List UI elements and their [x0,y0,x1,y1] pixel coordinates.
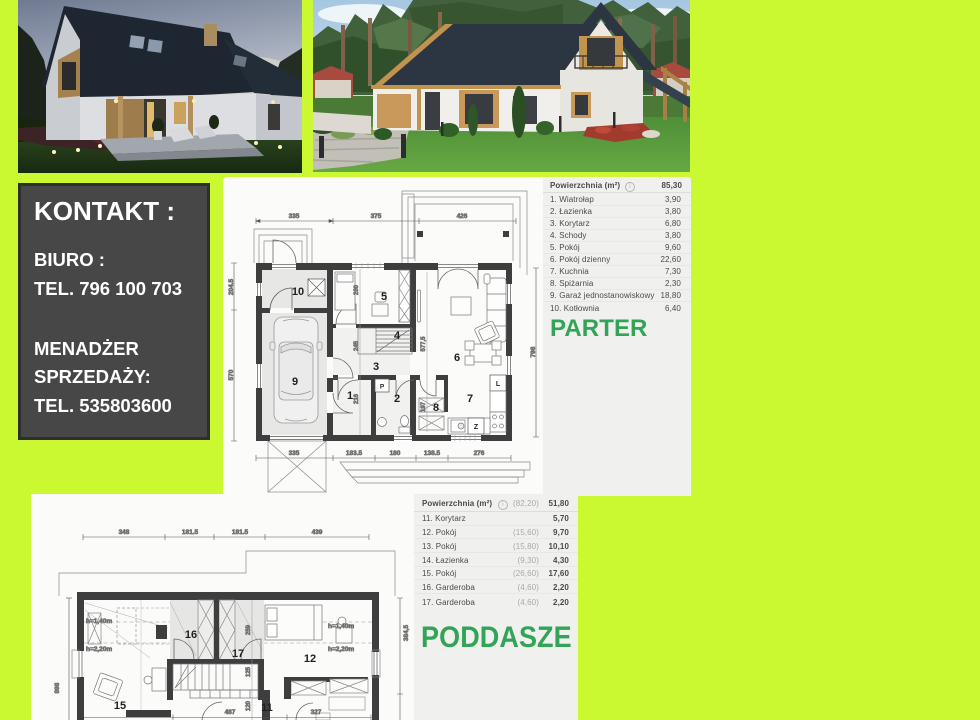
svg-text:197: 197 [421,401,427,412]
svg-text:898: 898 [54,682,61,693]
svg-text:245: 245 [354,340,360,351]
svg-text:181.5: 181.5 [232,529,249,536]
svg-text:h=1,40m: h=1,40m [328,623,354,630]
svg-text:796: 796 [530,346,537,357]
svg-text:17: 17 [232,648,244,660]
svg-text:426: 426 [457,213,468,220]
svg-text:259: 259 [246,624,252,635]
svg-text:181.5: 181.5 [182,529,199,536]
svg-text:3: 3 [373,361,379,373]
svg-text:12: 12 [304,653,316,665]
svg-text:204.5: 204.5 [228,278,235,295]
svg-text:138.5: 138.5 [424,450,441,457]
svg-text:183.5: 183.5 [346,450,363,457]
svg-text:125: 125 [246,666,252,677]
svg-text:P: P [380,384,385,391]
svg-text:348: 348 [119,529,130,536]
svg-text:487: 487 [225,709,236,716]
svg-text:216: 216 [354,393,360,404]
svg-text:5: 5 [381,291,387,303]
svg-text:439: 439 [312,529,323,536]
svg-text:h=2,20m: h=2,20m [86,646,112,653]
svg-text:260: 260 [354,284,360,295]
svg-text:120: 120 [246,700,252,711]
svg-text:6: 6 [454,352,460,364]
svg-text:15: 15 [114,700,126,712]
svg-text:375: 375 [371,213,382,220]
svg-text:10: 10 [292,286,304,298]
svg-text:4: 4 [394,330,401,342]
svg-text:180: 180 [390,450,401,457]
svg-text:Z: Z [474,424,479,431]
svg-text:8: 8 [433,402,439,414]
svg-text:570: 570 [228,369,235,380]
svg-text:16: 16 [185,629,197,641]
svg-text:327: 327 [311,709,322,716]
svg-text:1: 1 [347,390,353,402]
svg-text:2: 2 [394,393,400,405]
svg-text:9: 9 [292,376,298,388]
svg-text:577,5: 577,5 [421,336,427,352]
svg-text:276: 276 [474,450,485,457]
svg-text:L: L [496,381,501,388]
svg-text:11: 11 [261,702,273,714]
svg-text:335: 335 [289,450,300,457]
svg-text:7: 7 [467,393,473,405]
svg-text:335: 335 [289,213,300,220]
svg-text:h=1,40m: h=1,40m [86,618,112,625]
svg-text:h=2,20m: h=2,20m [328,646,354,653]
svg-text:384,5: 384,5 [403,624,410,641]
